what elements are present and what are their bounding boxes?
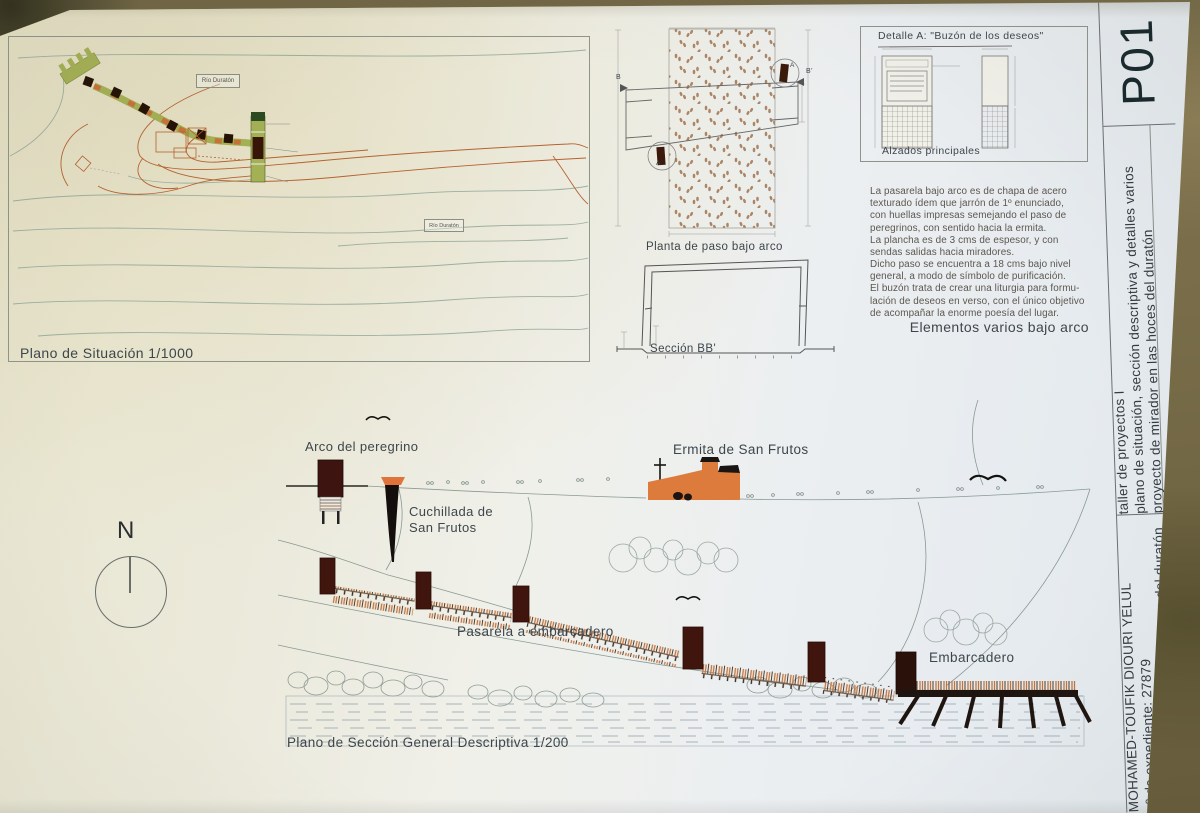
drawing-sheet: Río Duratón Río Duratón Plano de Situaci… — [0, 0, 1200, 813]
north-label: N — [117, 516, 135, 546]
cuchillada — [381, 477, 405, 562]
general-section-caption: Plano de Sección General Descriptiva 1/2… — [287, 735, 569, 752]
arch-pass-plan — [251, 112, 298, 182]
detail-a-caption: Alzados principales — [882, 145, 980, 158]
titleblock-section-1: taller de proyectos I plano de situación… — [1103, 125, 1163, 515]
detail-marker-a-bottom: A — [656, 160, 661, 168]
river-label-bottom-text: Río Duratón — [429, 223, 459, 229]
detail-a-title: Detalle A: "Buzón de los deseos" — [878, 30, 1044, 43]
arch-plan-caption: Planta de paso bajo arco — [646, 240, 783, 254]
detail-title-underline — [878, 46, 1012, 47]
arch-section-drawing — [612, 254, 840, 354]
teaching-team: Equipo Docente: Carlos González Bravo, J… — [1162, 237, 1191, 811]
footprint-field — [669, 29, 775, 228]
section-marker-b2: B' — [806, 68, 813, 77]
label-cuchillada: Cuchillada de San Frutos — [409, 504, 493, 537]
trees — [609, 537, 1007, 645]
section-marker-b: B — [616, 74, 621, 83]
river-label-top: Río Duratón — [196, 74, 240, 88]
notes-heading: Elementos varios bajo arco — [893, 319, 1089, 337]
north-arrow — [95, 556, 167, 628]
ermita — [648, 457, 740, 501]
title-block: P01 taller de proyectos I plano de situa… — [1098, 0, 1199, 813]
titleblock-section-2: MOHAMED-TOUFIK DIOURI YELUL nº de expedi… — [1117, 514, 1173, 812]
arch-plan-drawing — [612, 26, 812, 258]
contours-orange — [61, 84, 588, 204]
photo-of-drawing-sheet: { "sheet_code": "P01", "titleblock": { "… — [0, 0, 1200, 813]
portal-outer — [642, 260, 808, 346]
portal-inner — [650, 267, 801, 346]
contours-green — [10, 50, 588, 336]
label-ermita: Ermita de San Frutos — [673, 442, 809, 459]
arco-del-peregrino — [286, 460, 368, 524]
plan-diamond — [75, 156, 120, 174]
sheet-code: P01 — [1109, 17, 1166, 107]
river-label-top-text: Río Duratón — [202, 78, 234, 84]
river-label-bottom: Río Duratón — [424, 219, 464, 232]
site-plan-caption: Plano de Situación 1/1000 — [20, 345, 193, 363]
detail-a-drawing — [860, 26, 1088, 162]
label-arco: Arco del peregrino — [305, 439, 418, 455]
detail-marker-a-top: A — [790, 62, 795, 70]
project-title-repeat: proyecto de mirador en las hoces del dur… — [1150, 516, 1175, 811]
site-plan-drawing — [8, 36, 590, 362]
pier-plan — [56, 46, 101, 84]
label-pasarela: Pasarela a embarcadero — [457, 624, 614, 641]
sheet-code-box: P01 — [1099, 0, 1175, 127]
label-embarcadero: Embarcadero — [929, 650, 1014, 667]
front-elevation — [875, 49, 960, 148]
north-arrow-needle — [129, 556, 131, 593]
arch-section-caption: Sección BB' — [650, 342, 716, 356]
notes-paragraph: La pasarela bajo arco es de chapa de ace… — [870, 186, 1085, 320]
side-elevation — [982, 49, 1015, 148]
